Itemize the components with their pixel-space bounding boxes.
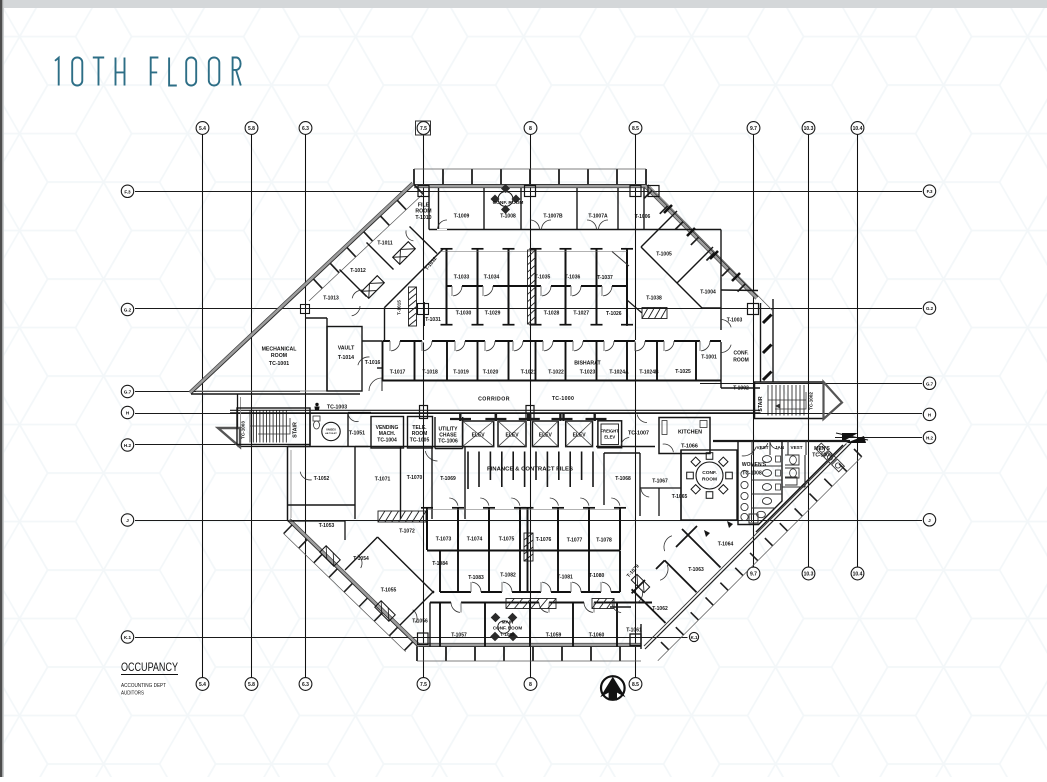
svg-text:T-1068: T-1068 bbox=[615, 476, 631, 482]
svg-text:8.5: 8.5 bbox=[632, 126, 639, 132]
svg-text:MAIN: MAIN bbox=[502, 620, 514, 625]
svg-text:T-1003: T-1003 bbox=[727, 318, 743, 324]
svg-text:T-1002: T-1002 bbox=[733, 386, 749, 392]
svg-text:T-1026: T-1026 bbox=[606, 311, 622, 317]
svg-text:7.5: 7.5 bbox=[420, 126, 427, 132]
svg-text:TC-1006: TC-1006 bbox=[438, 439, 458, 445]
svg-text:T-1010: T-1010 bbox=[415, 215, 431, 221]
svg-text:UNISEX: UNISEX bbox=[326, 428, 336, 432]
svg-text:T-1055: T-1055 bbox=[381, 588, 397, 594]
svg-text:T-1025: T-1025 bbox=[675, 369, 691, 375]
svg-text:T-1030: T-1030 bbox=[456, 311, 472, 317]
svg-text:T-1051: T-1051 bbox=[349, 431, 365, 437]
svg-text:9.7: 9.7 bbox=[750, 572, 757, 578]
svg-text:T-1007B: T-1007B bbox=[543, 214, 563, 220]
svg-text:T-1027: T-1027 bbox=[573, 311, 589, 317]
svg-text:KITCHEN: KITCHEN bbox=[678, 430, 702, 436]
svg-text:T-1005: T-1005 bbox=[656, 252, 672, 258]
svg-text:T-1036: T-1036 bbox=[565, 275, 581, 281]
svg-text:T-1014: T-1014 bbox=[338, 355, 354, 361]
svg-text:T-1029: T-1029 bbox=[485, 311, 501, 317]
svg-text:TC-1005: TC-1005 bbox=[410, 438, 430, 444]
svg-text:TC-1003: TC-1003 bbox=[241, 421, 246, 439]
svg-text:ROOM: ROOM bbox=[415, 209, 431, 215]
svg-text:ROOM: ROOM bbox=[702, 477, 717, 483]
svg-text:ROOM: ROOM bbox=[412, 431, 428, 437]
svg-text:T-1083: T-1083 bbox=[468, 575, 484, 581]
svg-text:T-1011: T-1011 bbox=[377, 241, 393, 247]
svg-text:T-1017: T-1017 bbox=[390, 370, 406, 376]
svg-text:MEN'S: MEN'S bbox=[814, 446, 830, 452]
svg-text:T-1028: T-1028 bbox=[544, 311, 560, 317]
svg-text:T-1033: T-1033 bbox=[454, 275, 470, 281]
svg-text:T-1023: T-1023 bbox=[580, 370, 596, 376]
svg-text:WOMEN'S: WOMEN'S bbox=[742, 462, 767, 468]
svg-text:7.5: 7.5 bbox=[420, 682, 427, 688]
svg-text:T-1037: T-1037 bbox=[597, 275, 613, 281]
svg-text:CONF.: CONF. bbox=[734, 351, 750, 357]
svg-text:10.4: 10.4 bbox=[853, 572, 863, 578]
svg-text:ELEV: ELEV bbox=[604, 435, 615, 440]
svg-text:T-1071: T-1071 bbox=[375, 477, 391, 483]
svg-text:TC-1008: TC-1008 bbox=[742, 471, 762, 477]
svg-text:T-1034: T-1034 bbox=[484, 275, 500, 281]
svg-text:H.2: H.2 bbox=[926, 436, 933, 441]
svg-text:STAIR: STAIR bbox=[758, 396, 764, 411]
svg-text:TC-1007: TC-1007 bbox=[628, 431, 649, 437]
svg-text:TC-1001: TC-1001 bbox=[269, 361, 289, 367]
svg-text:T-1031: T-1031 bbox=[425, 317, 441, 323]
svg-text:JAN: JAN bbox=[775, 445, 785, 450]
svg-text:ACCOUNTING DEPT: ACCOUNTING DEPT bbox=[121, 683, 166, 689]
svg-text:VEST: VEST bbox=[791, 445, 803, 450]
svg-text:5.8: 5.8 bbox=[248, 682, 255, 688]
svg-text:ELEV: ELEV bbox=[573, 433, 587, 439]
svg-text:CONF. ROOM: CONF. ROOM bbox=[493, 200, 524, 206]
svg-text:T-1070: T-1070 bbox=[407, 475, 423, 481]
svg-text:MECHANICAL: MECHANICAL bbox=[262, 347, 298, 353]
svg-text:CONF.: CONF. bbox=[702, 470, 716, 476]
svg-text:T-1019: T-1019 bbox=[453, 370, 469, 376]
svg-text:T-1008: T-1008 bbox=[500, 214, 516, 220]
svg-text:T-1004: T-1004 bbox=[700, 290, 716, 296]
svg-text:K.1: K.1 bbox=[124, 635, 132, 640]
svg-text:T-1084: T-1084 bbox=[432, 561, 448, 567]
svg-text:BISHARAT: BISHARAT bbox=[574, 361, 601, 367]
svg-text:J: J bbox=[126, 518, 129, 523]
svg-text:T-1056: T-1056 bbox=[412, 619, 428, 625]
svg-text:T-1006: T-1006 bbox=[635, 214, 651, 220]
svg-text:T-1063: T-1063 bbox=[688, 567, 704, 573]
svg-text:ROOM: ROOM bbox=[271, 353, 287, 359]
svg-text:6.3: 6.3 bbox=[302, 682, 309, 688]
svg-text:G.7: G.7 bbox=[124, 390, 132, 395]
svg-text:F.3: F.3 bbox=[927, 189, 933, 194]
svg-text:T-1073: T-1073 bbox=[436, 537, 452, 543]
svg-text:6.3: 6.3 bbox=[302, 126, 309, 132]
svg-text:T-1015: T-1015 bbox=[397, 300, 403, 315]
svg-text:AB TOILET: AB TOILET bbox=[325, 432, 337, 435]
svg-text:FINANCE & CONTRACT FILES: FINANCE & CONTRACT FILES bbox=[487, 467, 574, 473]
svg-text:10.3: 10.3 bbox=[804, 572, 814, 578]
svg-text:T-1052: T-1052 bbox=[314, 476, 330, 482]
svg-text:T-1069: T-1069 bbox=[440, 476, 456, 482]
svg-text:T-1082: T-1082 bbox=[500, 573, 516, 579]
svg-text:T-1021: T-1021 bbox=[521, 370, 537, 376]
svg-text:T-1009: T-1009 bbox=[454, 214, 470, 220]
svg-text:MACH.: MACH. bbox=[379, 431, 396, 437]
svg-text:ROOM: ROOM bbox=[733, 358, 749, 364]
svg-text:T-1062: T-1062 bbox=[652, 606, 668, 612]
svg-text:FREIGHT: FREIGHT bbox=[601, 429, 620, 434]
svg-text:T-1081: T-1081 bbox=[557, 575, 573, 581]
svg-text:TC-1000: TC-1000 bbox=[552, 396, 574, 402]
svg-text:CORRIDOR: CORRIDOR bbox=[478, 397, 510, 403]
svg-text:T-1066: T-1066 bbox=[681, 444, 698, 450]
svg-text:T-1007A: T-1007A bbox=[588, 214, 608, 220]
svg-text:H: H bbox=[928, 413, 931, 418]
svg-text:OCCUPANCY: OCCUPANCY bbox=[121, 662, 178, 674]
svg-text:H.2: H.2 bbox=[124, 443, 132, 448]
svg-text:T-1020: T-1020 bbox=[483, 370, 499, 376]
svg-text:T-1072: T-1072 bbox=[399, 529, 415, 535]
svg-text:T-1001: T-1001 bbox=[701, 355, 717, 361]
svg-text:T-1024B: T-1024B bbox=[639, 370, 659, 376]
svg-text:T-1016: T-1016 bbox=[365, 360, 381, 366]
svg-text:8.5: 8.5 bbox=[632, 682, 639, 688]
svg-text:8: 8 bbox=[529, 682, 532, 688]
svg-text:T-1058: T-1058 bbox=[500, 632, 515, 637]
svg-text:G.2: G.2 bbox=[124, 308, 132, 313]
svg-text:T-1080: T-1080 bbox=[589, 573, 605, 579]
svg-text:T-1077: T-1077 bbox=[567, 538, 583, 544]
svg-text:T-1022: T-1022 bbox=[548, 370, 564, 376]
svg-text:T-1059: T-1059 bbox=[546, 633, 562, 639]
svg-text:T-1067: T-1067 bbox=[652, 479, 668, 485]
svg-text:T-1035: T-1035 bbox=[535, 275, 551, 281]
svg-text:T-1013: T-1013 bbox=[323, 296, 339, 302]
svg-text:5.8: 5.8 bbox=[248, 126, 255, 132]
svg-text:TC-1003: TC-1003 bbox=[327, 405, 347, 411]
svg-text:T-1018: T-1018 bbox=[422, 370, 438, 376]
svg-text:ELEV: ELEV bbox=[472, 433, 486, 439]
svg-text:STAIR: STAIR bbox=[293, 422, 299, 438]
svg-text:10.4: 10.4 bbox=[853, 126, 863, 132]
svg-text:T-1061: T-1061 bbox=[626, 628, 642, 634]
svg-text:T-1065: T-1065 bbox=[672, 494, 688, 500]
svg-text:TC-1004: TC-1004 bbox=[377, 438, 397, 444]
svg-text:T-1076: T-1076 bbox=[536, 537, 552, 543]
svg-text:VAULT: VAULT bbox=[338, 346, 355, 352]
svg-text:T-1054: T-1054 bbox=[353, 556, 369, 562]
svg-text:K.1: K.1 bbox=[691, 635, 698, 640]
svg-text:T-1024A: T-1024A bbox=[609, 370, 629, 376]
svg-text:T-1064: T-1064 bbox=[718, 542, 734, 548]
svg-text:CONF. ROOM: CONF. ROOM bbox=[493, 626, 523, 631]
svg-text:ELEV: ELEV bbox=[539, 433, 553, 439]
svg-text:5.4: 5.4 bbox=[199, 126, 206, 132]
svg-text:T-1078: T-1078 bbox=[596, 538, 612, 544]
svg-text:T-1038: T-1038 bbox=[646, 296, 662, 302]
svg-text:8: 8 bbox=[529, 126, 532, 132]
svg-text:T-1074: T-1074 bbox=[467, 537, 483, 543]
svg-text:VEST: VEST bbox=[757, 445, 769, 450]
svg-text:G.2: G.2 bbox=[926, 306, 934, 311]
svg-text:T-1053: T-1053 bbox=[319, 523, 335, 529]
svg-text:TC-1009: TC-1009 bbox=[812, 453, 832, 459]
svg-text:10.3: 10.3 bbox=[804, 126, 814, 132]
svg-text:AUDITORS: AUDITORS bbox=[121, 691, 144, 697]
svg-text:T-1075: T-1075 bbox=[499, 537, 515, 543]
svg-text:F.3: F.3 bbox=[124, 189, 131, 194]
svg-text:T-1012: T-1012 bbox=[350, 268, 366, 274]
svg-text:TC-1002: TC-1002 bbox=[809, 392, 814, 410]
svg-text:T-1057: T-1057 bbox=[451, 633, 467, 639]
svg-text:9.7: 9.7 bbox=[750, 126, 757, 132]
svg-text:ELEV: ELEV bbox=[505, 433, 519, 439]
svg-text:T-1060: T-1060 bbox=[589, 633, 605, 639]
svg-text:G.7: G.7 bbox=[926, 381, 934, 386]
svg-text:5.4: 5.4 bbox=[199, 682, 206, 688]
